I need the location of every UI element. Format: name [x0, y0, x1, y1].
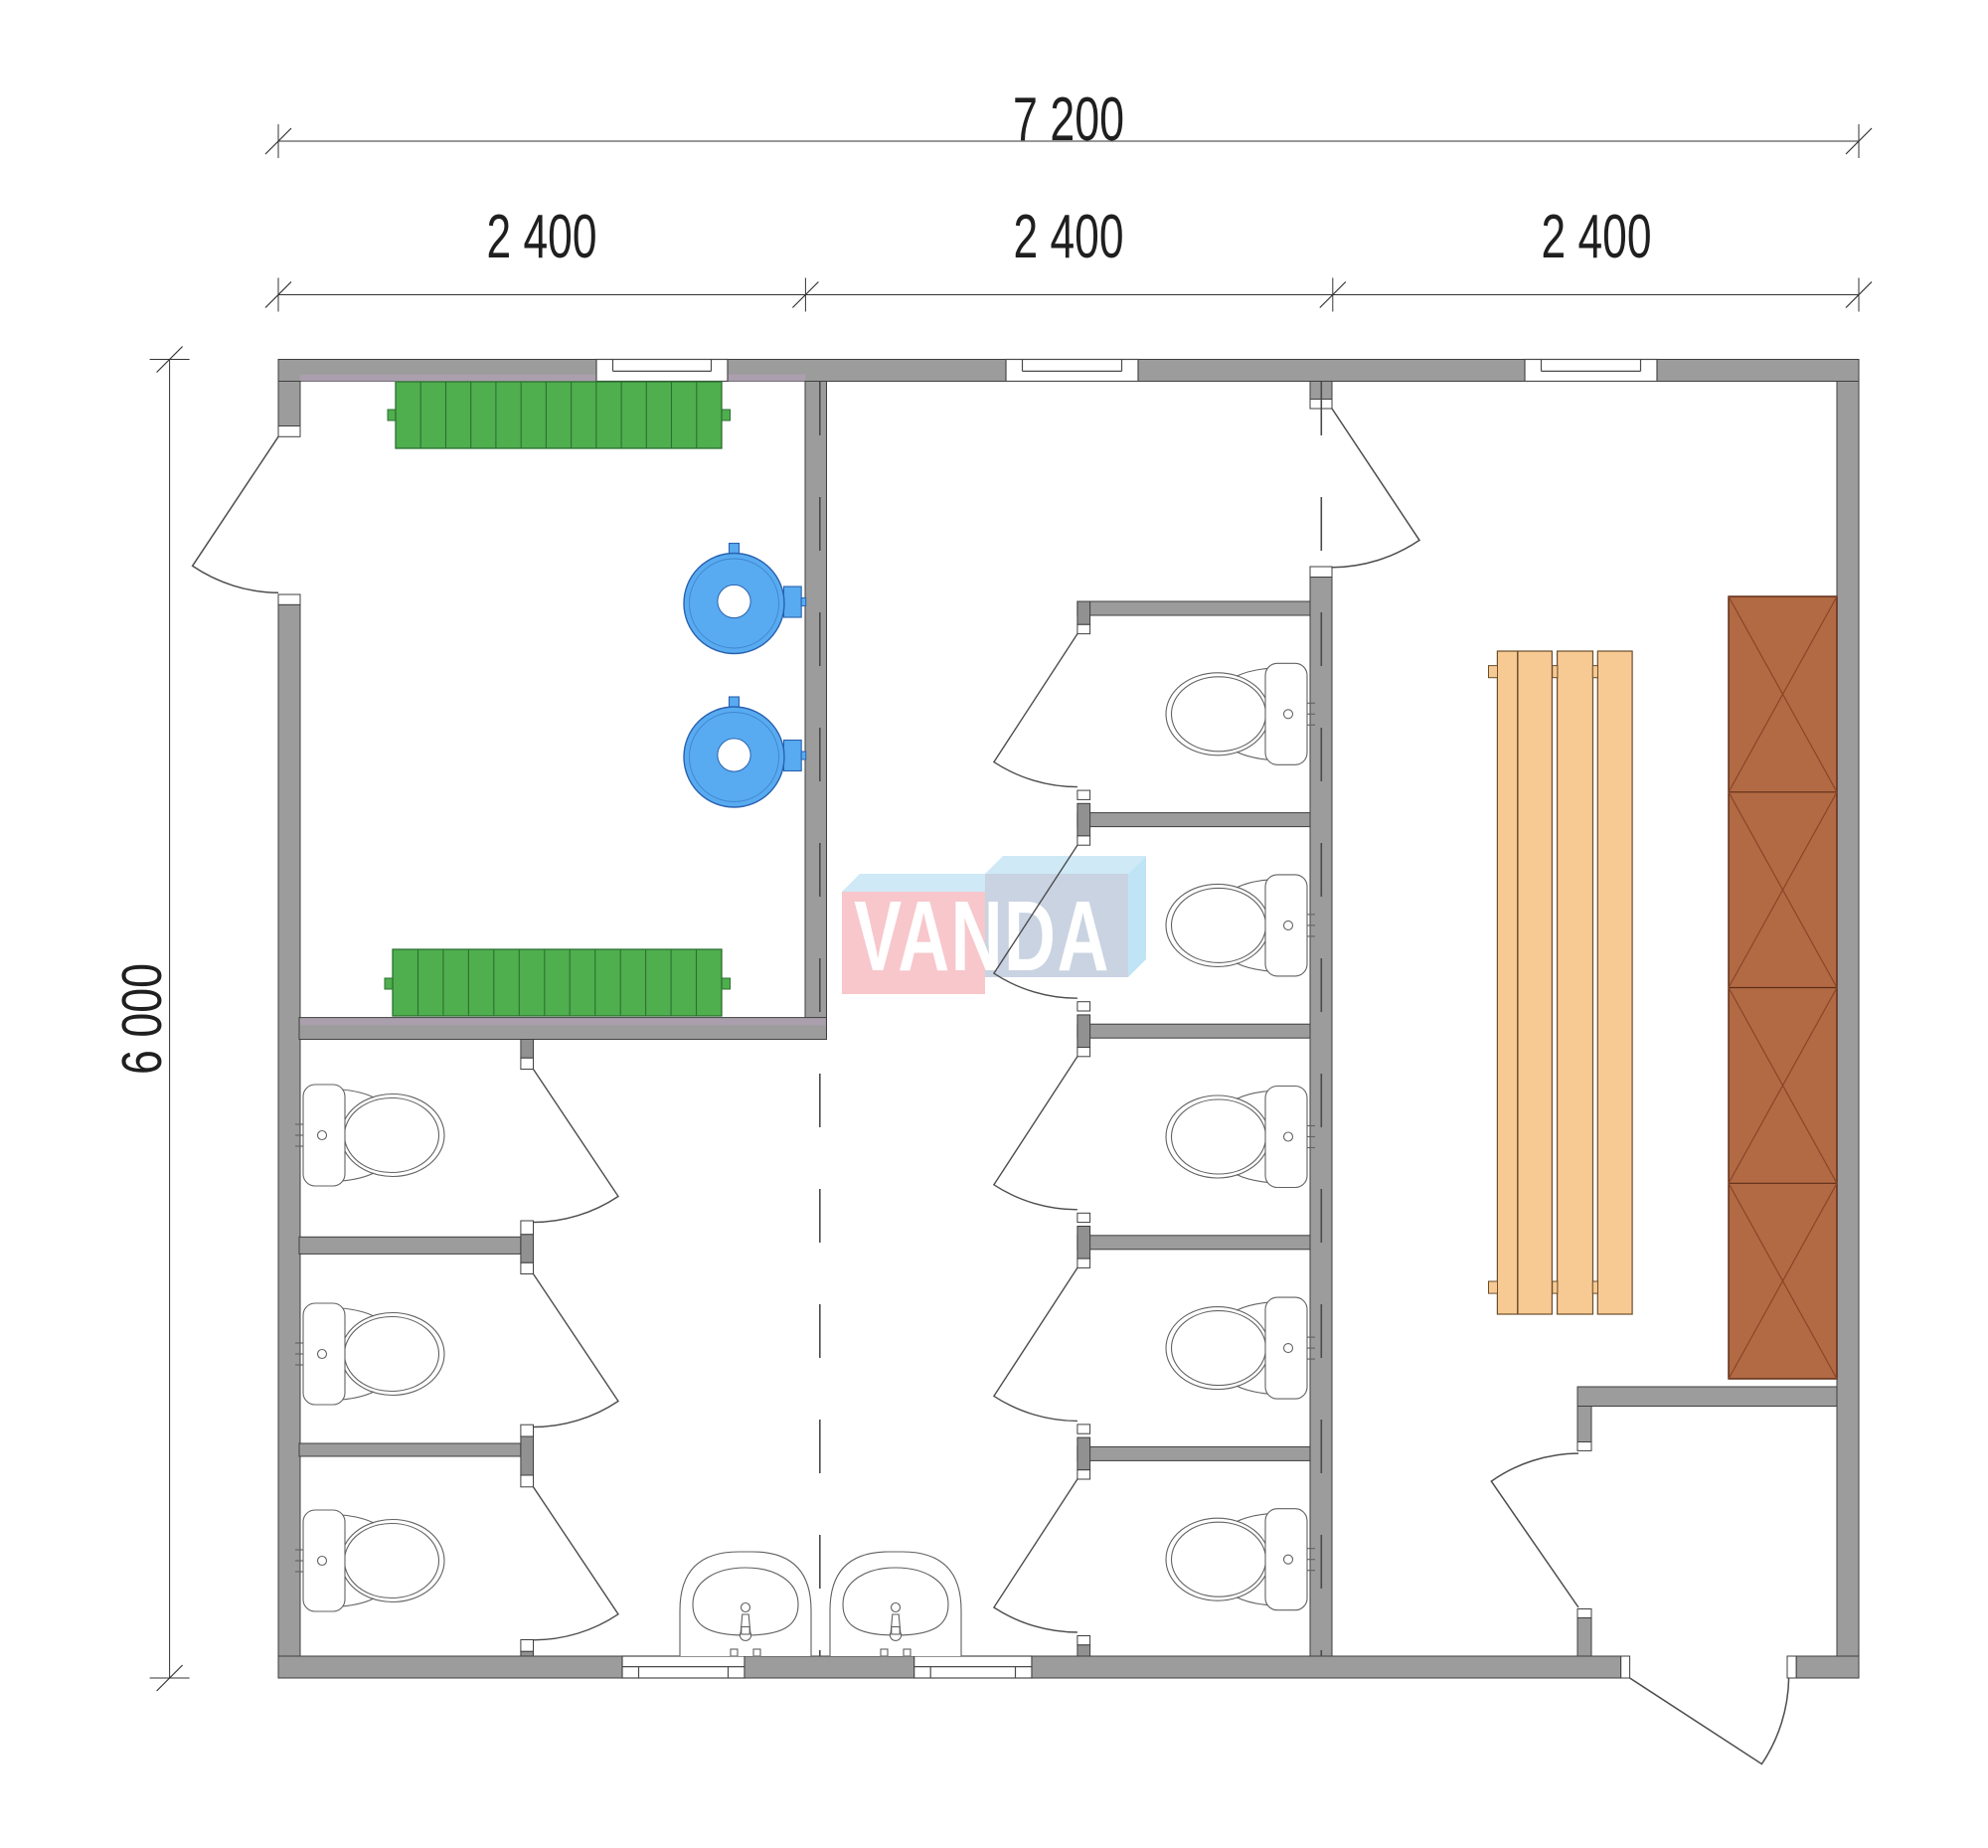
svg-text:7 200: 7 200	[1013, 85, 1124, 154]
svg-text:6 000: 6 000	[110, 963, 174, 1075]
svg-text:VANDA: VANDA	[854, 881, 1110, 991]
svg-text:2 400: 2 400	[487, 203, 597, 271]
svg-text:2 400: 2 400	[1014, 203, 1124, 271]
svg-text:2 400: 2 400	[1542, 203, 1652, 271]
